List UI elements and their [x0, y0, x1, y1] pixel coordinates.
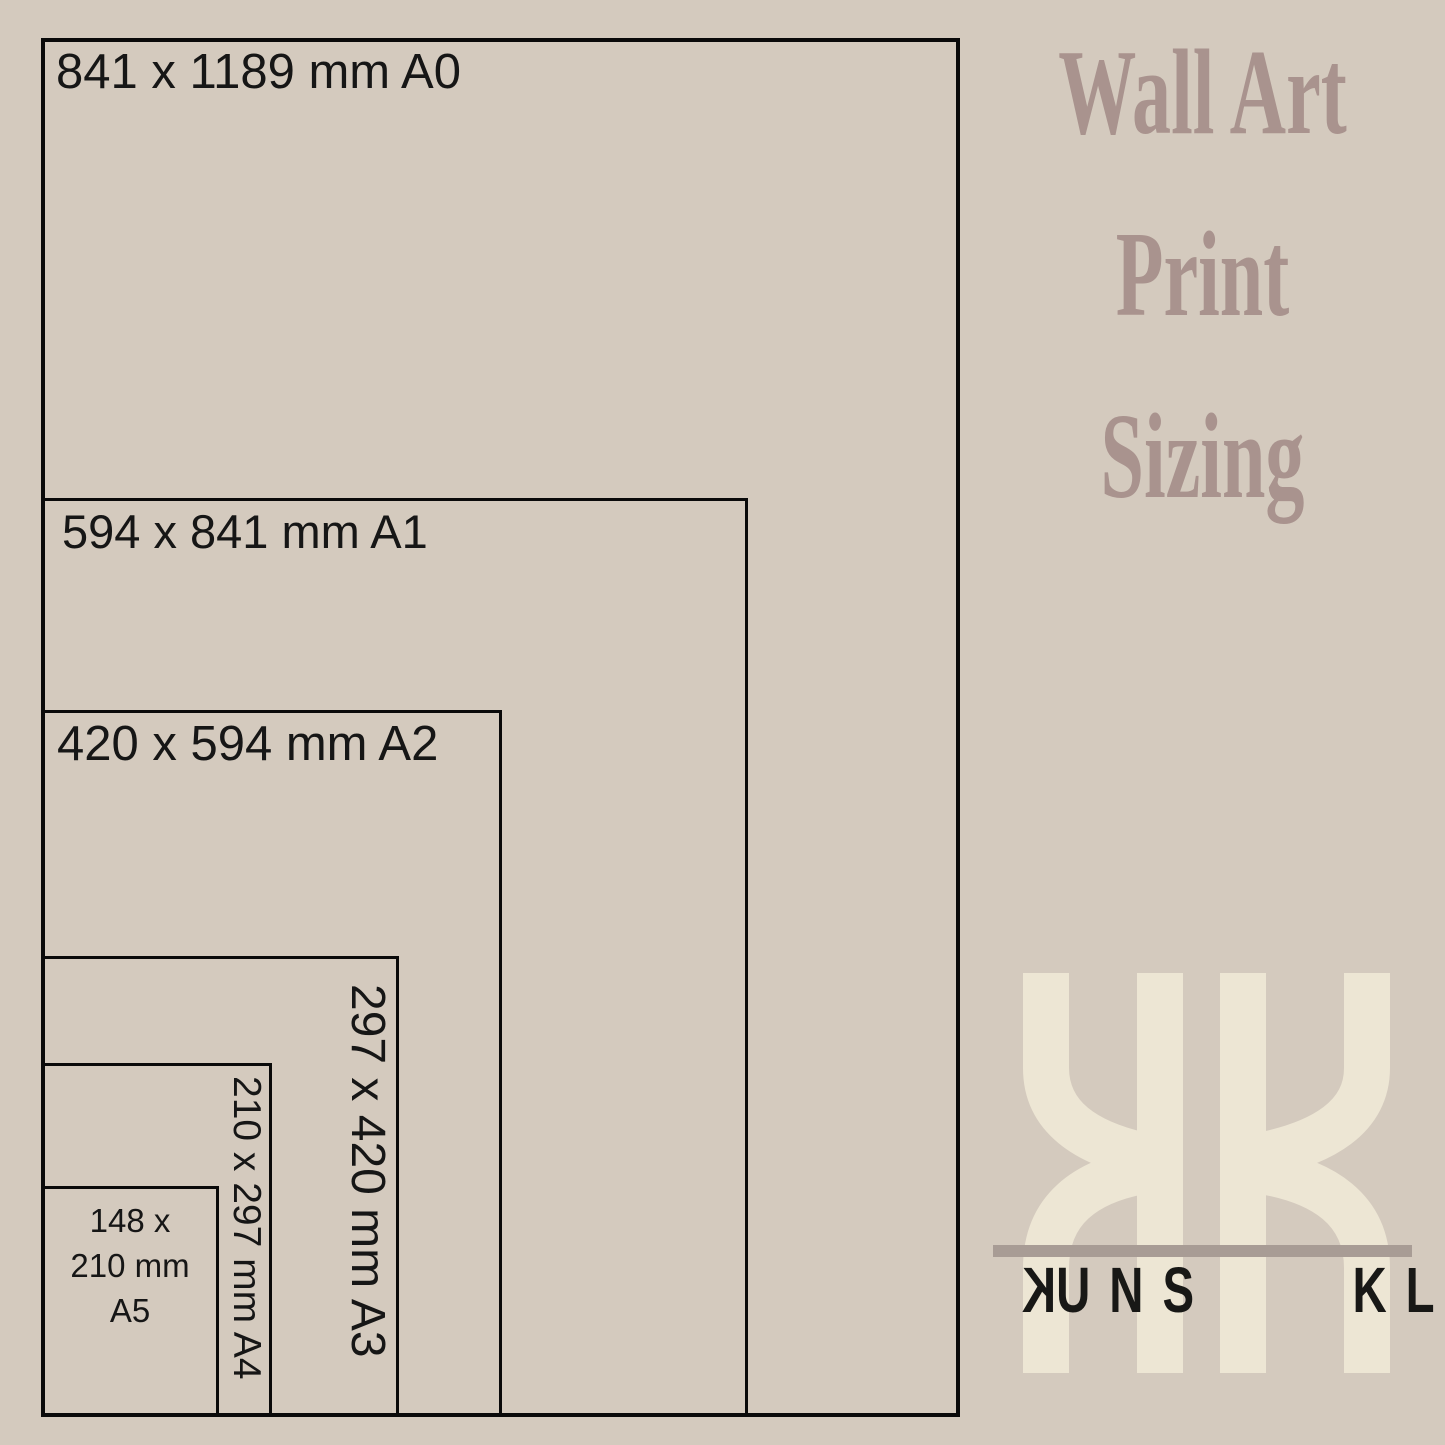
size-label-a0: 841 x 1189 mm A0 [56, 48, 461, 97]
print-sizing-infographic: 841 x 1189 mm A0 594 x 841 mm A1 420 x 5… [0, 0, 1445, 1445]
page-title-line-2: Print [1047, 214, 1357, 336]
page-title-line-3: Sizing [1047, 396, 1357, 518]
logo-word-klik: KLIK [1352, 1258, 1445, 1322]
size-label-a5: 148 x 210 mm A5 [44, 1198, 216, 1333]
page-title-line-1: Wall Art [1047, 32, 1357, 154]
logo-word-kuns: KUNS [1003, 1258, 1213, 1322]
logo-wordmark: KUNS KLIK [1003, 1258, 1413, 1322]
logo-mirrored-k: K [1003, 1258, 1056, 1322]
size-label-a4: 210 x 297 mm A4 [227, 1076, 266, 1380]
size-label-a5-line2: 210 mm [44, 1243, 216, 1288]
size-label-a3: 297 x 420 mm A3 [343, 984, 391, 1358]
size-label-a5-line1: 148 x [44, 1198, 216, 1243]
logo-word-kuns-rest: UNS [1056, 1254, 1213, 1326]
size-label-a5-line3: A5 [44, 1288, 216, 1333]
size-label-a1: 594 x 841 mm A1 [62, 508, 428, 555]
size-label-a2: 420 x 594 mm A2 [57, 720, 438, 769]
